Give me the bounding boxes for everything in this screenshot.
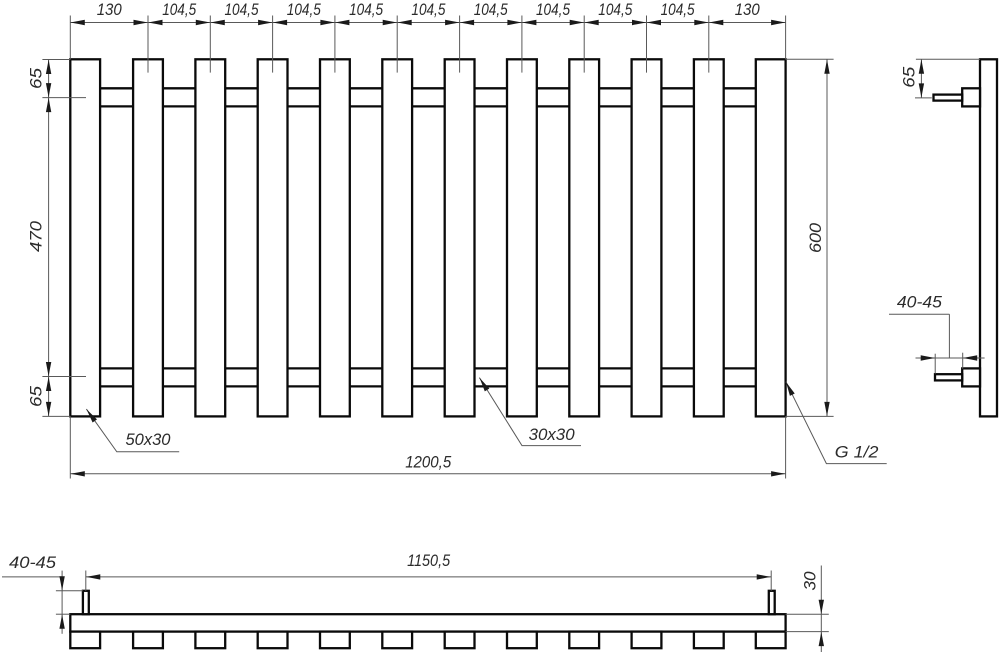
svg-text:130: 130: [97, 1, 123, 19]
svg-text:104,5: 104,5: [411, 1, 446, 19]
svg-text:40-45: 40-45: [897, 294, 943, 312]
svg-text:104,5: 104,5: [287, 1, 322, 19]
svg-text:30x30: 30x30: [529, 426, 576, 444]
svg-text:104,5: 104,5: [162, 1, 197, 19]
svg-text:1200,5: 1200,5: [405, 454, 452, 472]
svg-text:104,5: 104,5: [474, 1, 509, 19]
svg-text:50x30: 50x30: [126, 431, 172, 449]
svg-text:65: 65: [901, 66, 919, 88]
svg-text:104,5: 104,5: [536, 1, 571, 19]
svg-text:104,5: 104,5: [349, 1, 384, 19]
svg-text:65: 65: [28, 67, 46, 89]
svg-text:470: 470: [28, 220, 46, 252]
svg-text:104,5: 104,5: [598, 1, 633, 19]
svg-text:1150,5: 1150,5: [407, 552, 451, 570]
svg-text:130: 130: [735, 1, 761, 19]
svg-text:104,5: 104,5: [225, 1, 260, 19]
svg-text:600: 600: [807, 222, 825, 253]
svg-text:30: 30: [802, 571, 820, 591]
svg-text:G 1/2: G 1/2: [835, 444, 879, 462]
svg-text:40-45: 40-45: [9, 554, 57, 572]
svg-text:104,5: 104,5: [661, 1, 696, 19]
svg-text:65: 65: [28, 385, 46, 407]
